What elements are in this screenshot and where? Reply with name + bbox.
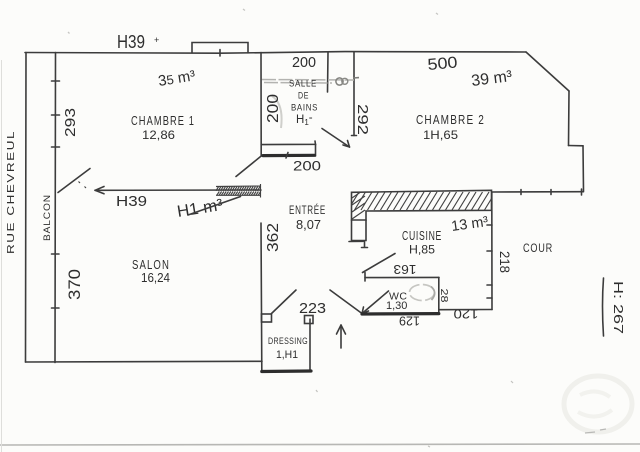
svg-text:COUR: COUR (523, 241, 553, 255)
svg-text:RUE CHEVREUL: RUE CHEVREUL (5, 130, 17, 254)
svg-text:1H,65: 1H,65 (423, 128, 458, 142)
svg-text:ENTRÉE: ENTRÉE (289, 204, 326, 217)
svg-text:H39: H39 (116, 194, 147, 210)
svg-text:8,07: 8,07 (296, 218, 321, 232)
svg-text:500: 500 (427, 54, 458, 74)
svg-text:129: 129 (399, 314, 420, 329)
svg-text:12,86: 12,86 (142, 128, 175, 142)
svg-text:120: 120 (454, 307, 479, 322)
svg-text:218: 218 (497, 251, 513, 273)
svg-text:SALLE: SALLE (289, 79, 317, 90)
svg-text:H: 267: H: 267 (611, 281, 626, 334)
svg-text:CHAMBRE 2: CHAMBRE 2 (416, 112, 485, 127)
svg-text:223: 223 (299, 301, 326, 317)
svg-text:292: 292 (354, 104, 371, 135)
svg-text:16,24: 16,24 (141, 271, 170, 285)
svg-text:1,30: 1,30 (386, 300, 407, 312)
svg-text:200: 200 (265, 94, 282, 123)
svg-text:362: 362 (265, 223, 282, 252)
svg-text:DE: DE (298, 91, 309, 102)
svg-text:BAINS: BAINS (291, 103, 318, 114)
svg-text:28: 28 (438, 289, 450, 303)
svg-text:163: 163 (394, 262, 417, 277)
svg-text:1,H1: 1,H1 (276, 349, 298, 361)
svg-text:DRESSING: DRESSING (268, 336, 308, 347)
svg-text:CUISINE: CUISINE (402, 229, 442, 243)
svg-text:+: + (154, 35, 159, 45)
svg-text:200: 200 (292, 54, 316, 71)
svg-text:CHAMBRE 1: CHAMBRE 1 (131, 113, 195, 128)
svg-text:293: 293 (62, 108, 79, 137)
svg-text:H39: H39 (117, 32, 145, 52)
svg-text:200: 200 (293, 158, 321, 174)
svg-text:BALCON: BALCON (42, 194, 53, 241)
svg-text:370: 370 (66, 269, 84, 300)
svg-text:SALON: SALON (132, 257, 170, 272)
svg-text:H,85: H,85 (409, 243, 435, 257)
